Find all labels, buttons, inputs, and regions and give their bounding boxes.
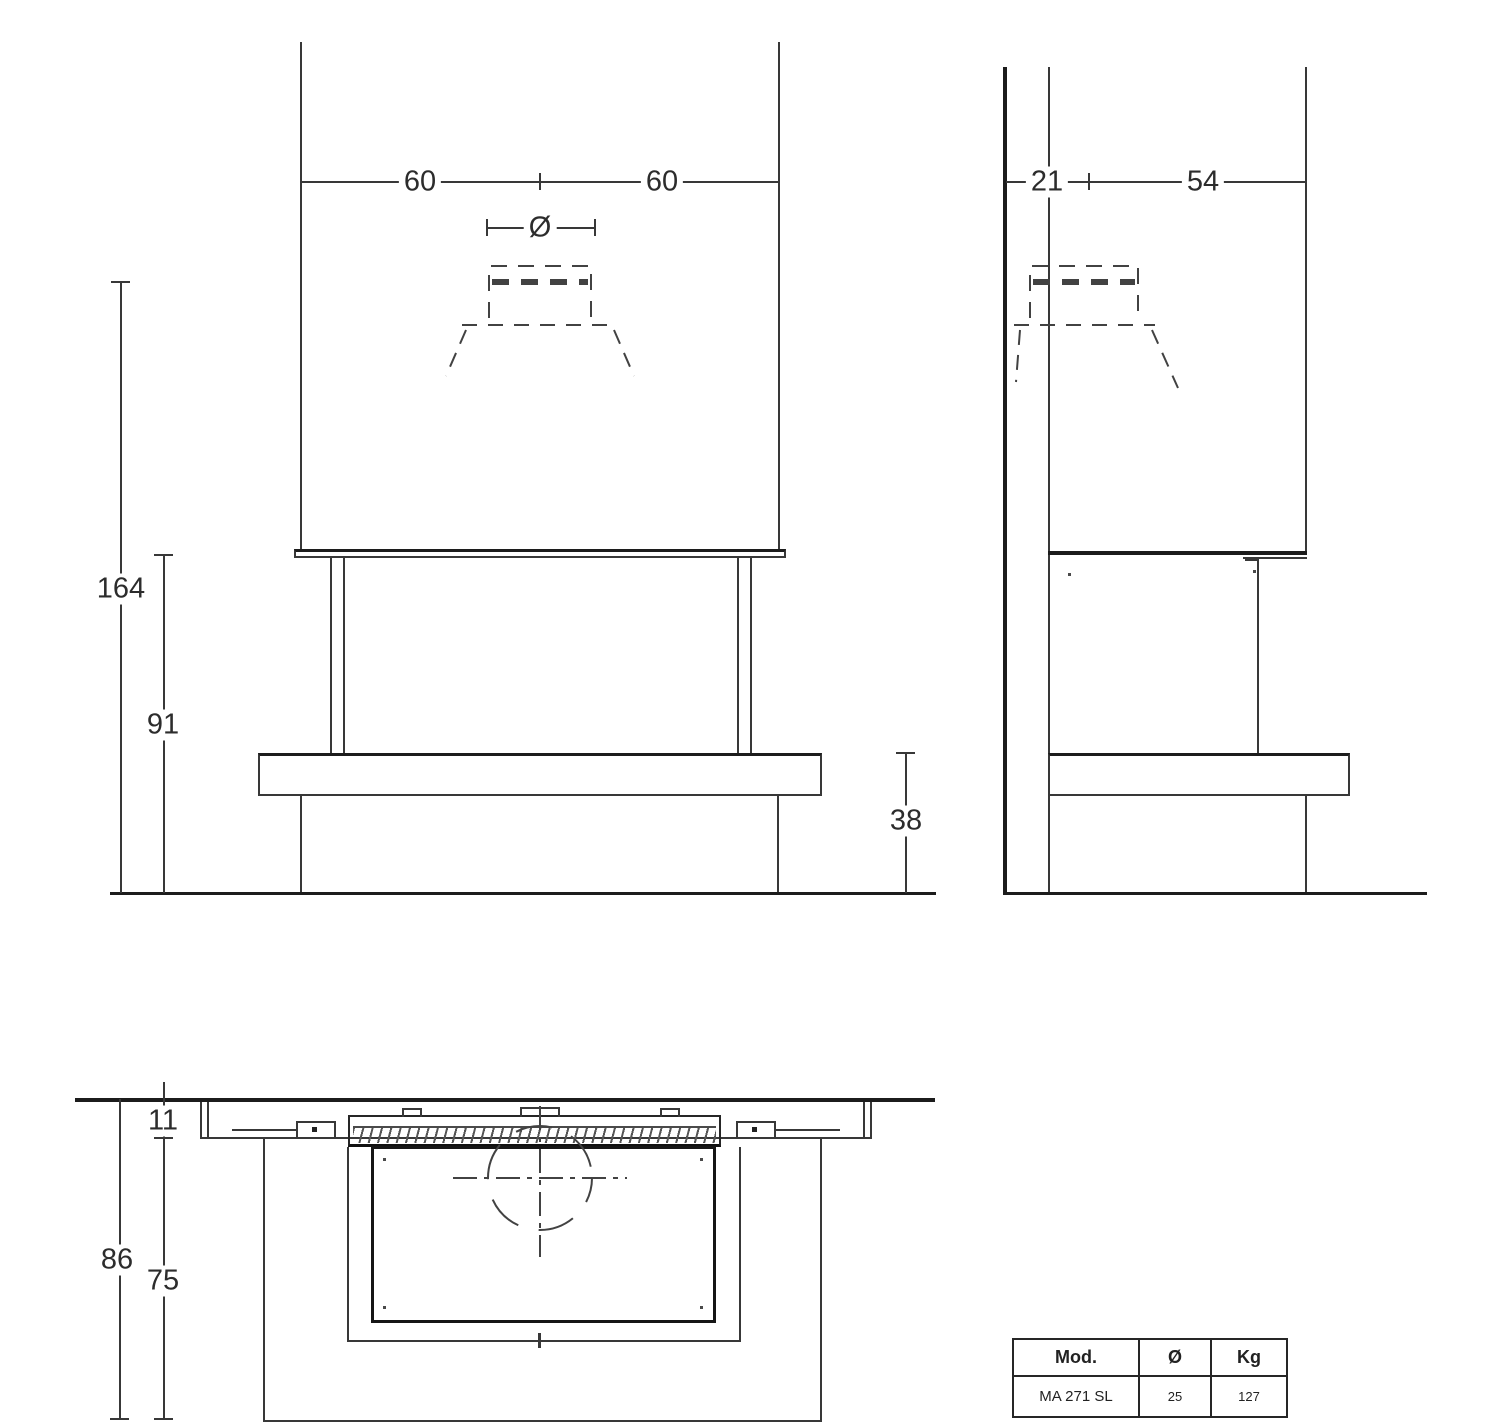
spec-header-weight: Kg bbox=[1212, 1340, 1286, 1377]
spec-diameter-value: 25 bbox=[1140, 1377, 1212, 1416]
side-flue-pipe-outline bbox=[1030, 266, 1138, 318]
spec-table: Mod. Ø Kg MA 271 SL 25 127 bbox=[1012, 1338, 1288, 1418]
spec-header-mod: Mod. bbox=[1014, 1340, 1140, 1377]
front-flue-cone-right bbox=[614, 330, 634, 376]
dashed-flue-overlay bbox=[0, 0, 1500, 1427]
spec-header-diameter: Ø bbox=[1140, 1340, 1212, 1377]
front-flue-cone-left bbox=[446, 330, 466, 376]
side-flue-cone-left bbox=[1016, 330, 1020, 382]
front-flue-pipe-outline bbox=[489, 266, 591, 318]
side-flue-cone-right bbox=[1152, 330, 1178, 388]
spec-weight-value: 127 bbox=[1212, 1377, 1286, 1416]
fireplace-technical-drawing: 60 60 Ø 164 91 38 bbox=[0, 0, 1500, 1427]
spec-model-value: MA 271 SL bbox=[1014, 1377, 1140, 1416]
